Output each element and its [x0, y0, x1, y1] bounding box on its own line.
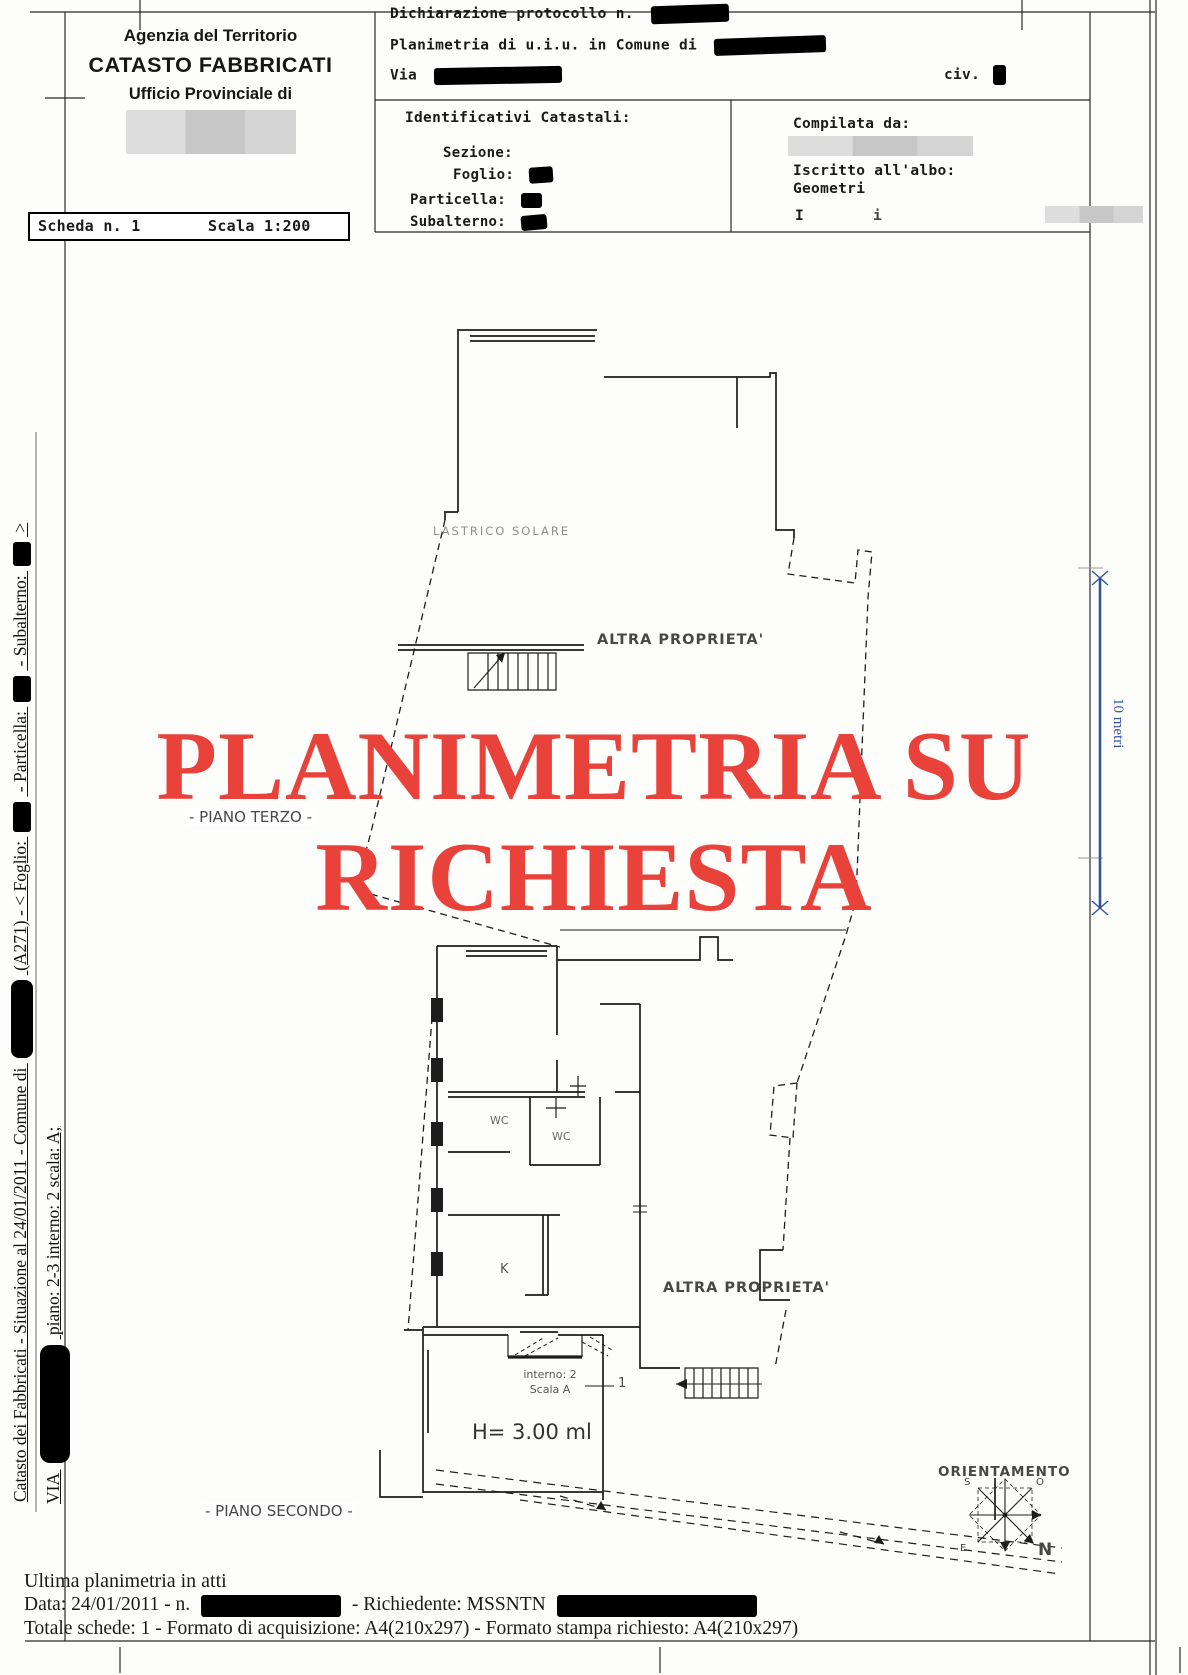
terzo-staircase	[398, 645, 584, 690]
compass-rose	[969, 1479, 1041, 1551]
stair-treads	[468, 653, 556, 690]
lower-room-walls	[380, 1327, 603, 1500]
protocol-label: Dichiarazione protocollo n.	[390, 6, 634, 22]
compass-letter-o: O	[1036, 1477, 1044, 1488]
external-stair-treads	[685, 1368, 758, 1398]
frame-bottom-ticks	[120, 1647, 1180, 1673]
sidebar-foglio-redaction	[13, 802, 31, 832]
richiedente-label: - Richiedente: MSSNTN	[352, 1594, 546, 1615]
protocol-row: Dichiarazione protocollo n.	[390, 5, 729, 23]
richiedente-redaction	[557, 1595, 757, 1617]
via-label: Via	[390, 68, 417, 84]
data-label: Data: 24/01/2011 - n.	[24, 1594, 190, 1615]
sidebar-address-line: VIA piano: 2-3 interno: 2 scala: A;	[40, 944, 70, 1504]
albo-value: Geometri	[793, 181, 865, 197]
office-name-redaction	[126, 110, 296, 154]
totale-schede-row: Totale schede: 1 - Formato di acquisizio…	[24, 1618, 798, 1640]
sezione-label: Sezione:	[443, 145, 513, 161]
compilata-title: Compilata da:	[793, 116, 910, 132]
terzo-wall-right	[604, 373, 794, 538]
protocol-number-redaction	[651, 4, 730, 25]
scale-label: Scala 1:200	[208, 217, 311, 235]
interno-line-2: Scala A	[518, 1383, 582, 1398]
secondo-wall-top-window	[437, 946, 557, 956]
secondo-wall-outer-right	[600, 1004, 640, 1327]
external-stair-arrowhead	[676, 1379, 687, 1389]
height-label: H= 3.00 ml	[472, 1420, 592, 1444]
sidebar-ref-part-b: (A271) - < Foglio:	[10, 841, 30, 971]
particella-row: Particella:	[410, 192, 542, 208]
scheda-box: Scheda n. 1 Scala 1:200	[28, 212, 350, 241]
sidebar-comune-redaction	[11, 980, 33, 1058]
agency-header: Agenzia del Territorio CATASTO FABBRICAT…	[68, 26, 353, 154]
civ-row: civ.	[944, 65, 1006, 85]
secondo-wc-band-wall	[448, 1092, 640, 1097]
lastrico-solare-label: LASTRICO SOLARE	[433, 524, 570, 538]
compass-arrowhead-east	[1032, 1510, 1041, 1520]
wc2-label: WC	[552, 1130, 571, 1143]
secondo-wall-bottom	[423, 1327, 640, 1332]
comune-redaction	[714, 35, 827, 56]
secondo-staircase	[508, 1335, 612, 1357]
stair-sides	[508, 1335, 582, 1357]
compass-arrowhead-south	[1000, 1542, 1010, 1551]
sidebar-particella-redaction	[13, 676, 31, 702]
compilata-name-redaction	[788, 136, 973, 156]
sidebar-ref-part-e: >	[10, 523, 30, 533]
piano-terzo-plan	[356, 330, 872, 1083]
sidebar-reference-line: Catasto dei Fabbricati - Situazione al 2…	[10, 432, 33, 1502]
sidebar-ref-part-d: - Subalterno:	[10, 575, 30, 666]
compass-letter-e: E	[960, 1543, 966, 1554]
sidebar-ref-part-a: Catasto dei Fabbricati - Situazione al 2…	[10, 1068, 30, 1502]
wc1-walls	[448, 1097, 530, 1152]
scalebar-label: 10 metri	[1109, 698, 1126, 748]
subalterno-label: Subalterno:	[410, 214, 506, 230]
subalterno-row: Subalterno:	[410, 214, 547, 230]
sidebar-via-label: VIA	[43, 1474, 63, 1504]
data-number-redaction	[201, 1595, 341, 1617]
sidebar-ref-part-c: - Particella:	[10, 711, 30, 792]
provincial-office-label: Ufficio Provinciale di	[68, 85, 353, 104]
stair-landing-lines	[398, 645, 584, 650]
sidebar-via-redaction	[40, 1345, 70, 1463]
foglio-label: Foglio:	[453, 167, 514, 183]
altra-proprieta-top-label: ALTRA PROPRIETA'	[597, 632, 764, 648]
interno-label: interno: 2 Scala A	[518, 1368, 582, 1398]
stair-fan-lines	[515, 1337, 612, 1356]
particella-redaction	[521, 193, 542, 208]
ultima-planimetria-note: Ultima planimetria in atti	[24, 1570, 227, 1593]
planimetria-row: Planimetria di u.i.u. in Comune di	[390, 37, 826, 54]
orientamento-label: ORIENTAMENTO	[938, 1464, 1071, 1480]
secondo-step-top-right	[557, 937, 733, 960]
sidebar-subalterno-redaction	[13, 542, 31, 566]
civ-number-redaction	[993, 65, 1006, 85]
kitchen-label: K	[500, 1262, 509, 1277]
compilata-partial-right: i	[873, 208, 882, 224]
planimetria-label: Planimetria di u.i.u. in Comune di	[390, 38, 697, 54]
albo-label: Iscritto all'albo:	[793, 163, 956, 179]
piano-secondo-label: - PIANO SECONDO -	[202, 1502, 356, 1520]
compass-center-dot	[1003, 1513, 1008, 1518]
via-row: Via	[390, 67, 562, 84]
piano-terzo-label: - PIANO TERZO -	[186, 808, 315, 826]
altra-proprieta-bottom-label: ALTRA PROPRIETA'	[663, 1280, 830, 1296]
interno-mark: 1	[618, 1376, 626, 1391]
compass-letter-s: S	[964, 1477, 970, 1488]
secondo-boundary-dashed-right	[770, 1083, 797, 1368]
kitchen-walls	[448, 1215, 560, 1295]
sidebar-address-detail: piano: 2-3 interno: 2 scala: A;	[43, 1127, 63, 1336]
compilata-right-redaction	[1045, 206, 1143, 223]
planimetria-su-richiesta-stamp: PLANIMETRIA SU RICHIESTA	[0, 712, 1188, 934]
compilata-partial-left: I	[795, 208, 804, 224]
foglio-row: Foglio:	[453, 167, 553, 183]
street-redaction	[434, 66, 562, 85]
catasto-title: CATASTO FABBRICATI	[68, 53, 353, 78]
cadastral-document-page: { "header": { "agency_line1": "Agenzia d…	[0, 0, 1188, 1675]
interno-line-1: interno: 2	[518, 1368, 582, 1383]
subalterno-redaction	[520, 213, 547, 230]
external-landing	[640, 1327, 680, 1368]
terzo-wall-left	[445, 330, 597, 520]
data-richiedente-row: Data: 24/01/2011 - n. - Richiedente: MSS…	[24, 1594, 763, 1617]
stamp-line-1: PLANIMETRIA SU	[0, 712, 1188, 823]
identificativi-title: Identificativi Catastali:	[405, 110, 631, 126]
compass-letter-n: N	[1038, 1540, 1052, 1560]
scheda-number: Scheda n. 1	[38, 217, 141, 235]
particella-label: Particella:	[410, 192, 506, 208]
foglio-redaction	[528, 166, 553, 184]
stamp-line-2: RICHIESTA	[0, 823, 1188, 934]
secondo-boundary-dashed-left	[408, 1005, 433, 1330]
civ-label: civ.	[944, 67, 980, 83]
wc1-label: WC	[490, 1114, 509, 1127]
agency-name: Agenzia del Territorio	[68, 26, 353, 46]
